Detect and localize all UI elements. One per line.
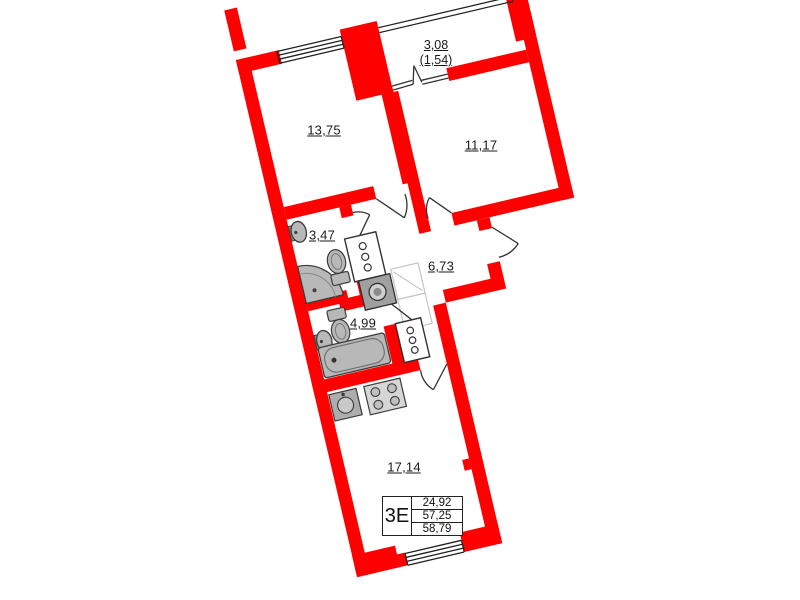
door-entrance (492, 222, 520, 257)
room-area-label-4-99: 4,99 (350, 316, 376, 331)
room-area-label-17-14: 17,14 (387, 460, 421, 475)
wall-bedroom-bottom (451, 185, 574, 226)
wall-top-corner-stub (236, 50, 282, 74)
balcony-dim-half: (1,54) (420, 53, 453, 68)
walls (224, 0, 647, 577)
window-kitchen (405, 540, 464, 565)
door-bedroom (423, 193, 451, 218)
area-total-with-balcony: 58,79 (412, 523, 462, 535)
door-kitchen (420, 364, 451, 392)
kitchen-sink-icon (329, 388, 362, 421)
wall-neighbor-stub (224, 8, 246, 52)
balcony-dim-full: 3,08 (420, 38, 453, 53)
window-room13 (277, 36, 344, 63)
stove-icon (364, 378, 407, 415)
vent-duct-icon (345, 232, 386, 282)
balcony-rail (378, 0, 513, 33)
room-area-label-11-17: 11,17 (465, 138, 498, 153)
room-area-label-3-47: 3,47 (309, 228, 335, 243)
wall-room13-bottom (284, 186, 377, 220)
apartment-type-label: 3Е (383, 497, 412, 535)
wall-bottom-stub-right (460, 524, 503, 552)
floor-plan: 13,75 11,17 3,47 6,73 4,99 17,14 3,08 (1… (0, 0, 800, 600)
wall-hall-southeast (443, 276, 506, 303)
apartment-areas: 24,92 57,25 58,79 (412, 497, 462, 535)
door-room13 (376, 192, 410, 223)
plan-geometry (224, 0, 647, 577)
wall-outer-right-bedroom (513, 0, 574, 200)
area-total: 57,25 (412, 510, 462, 523)
room-area-label-6-73: 6,73 (428, 259, 454, 274)
room-area-label-13-75: 13,75 (307, 123, 341, 138)
washing-machine-icon (359, 274, 397, 311)
apartment-info-table: 3Е 24,92 57,25 58,79 (382, 496, 463, 536)
balcony-dimension-label: 3,08 (1,54) (420, 38, 453, 68)
wall-bedroom-top (446, 50, 529, 81)
area-living: 24,92 (412, 497, 462, 510)
